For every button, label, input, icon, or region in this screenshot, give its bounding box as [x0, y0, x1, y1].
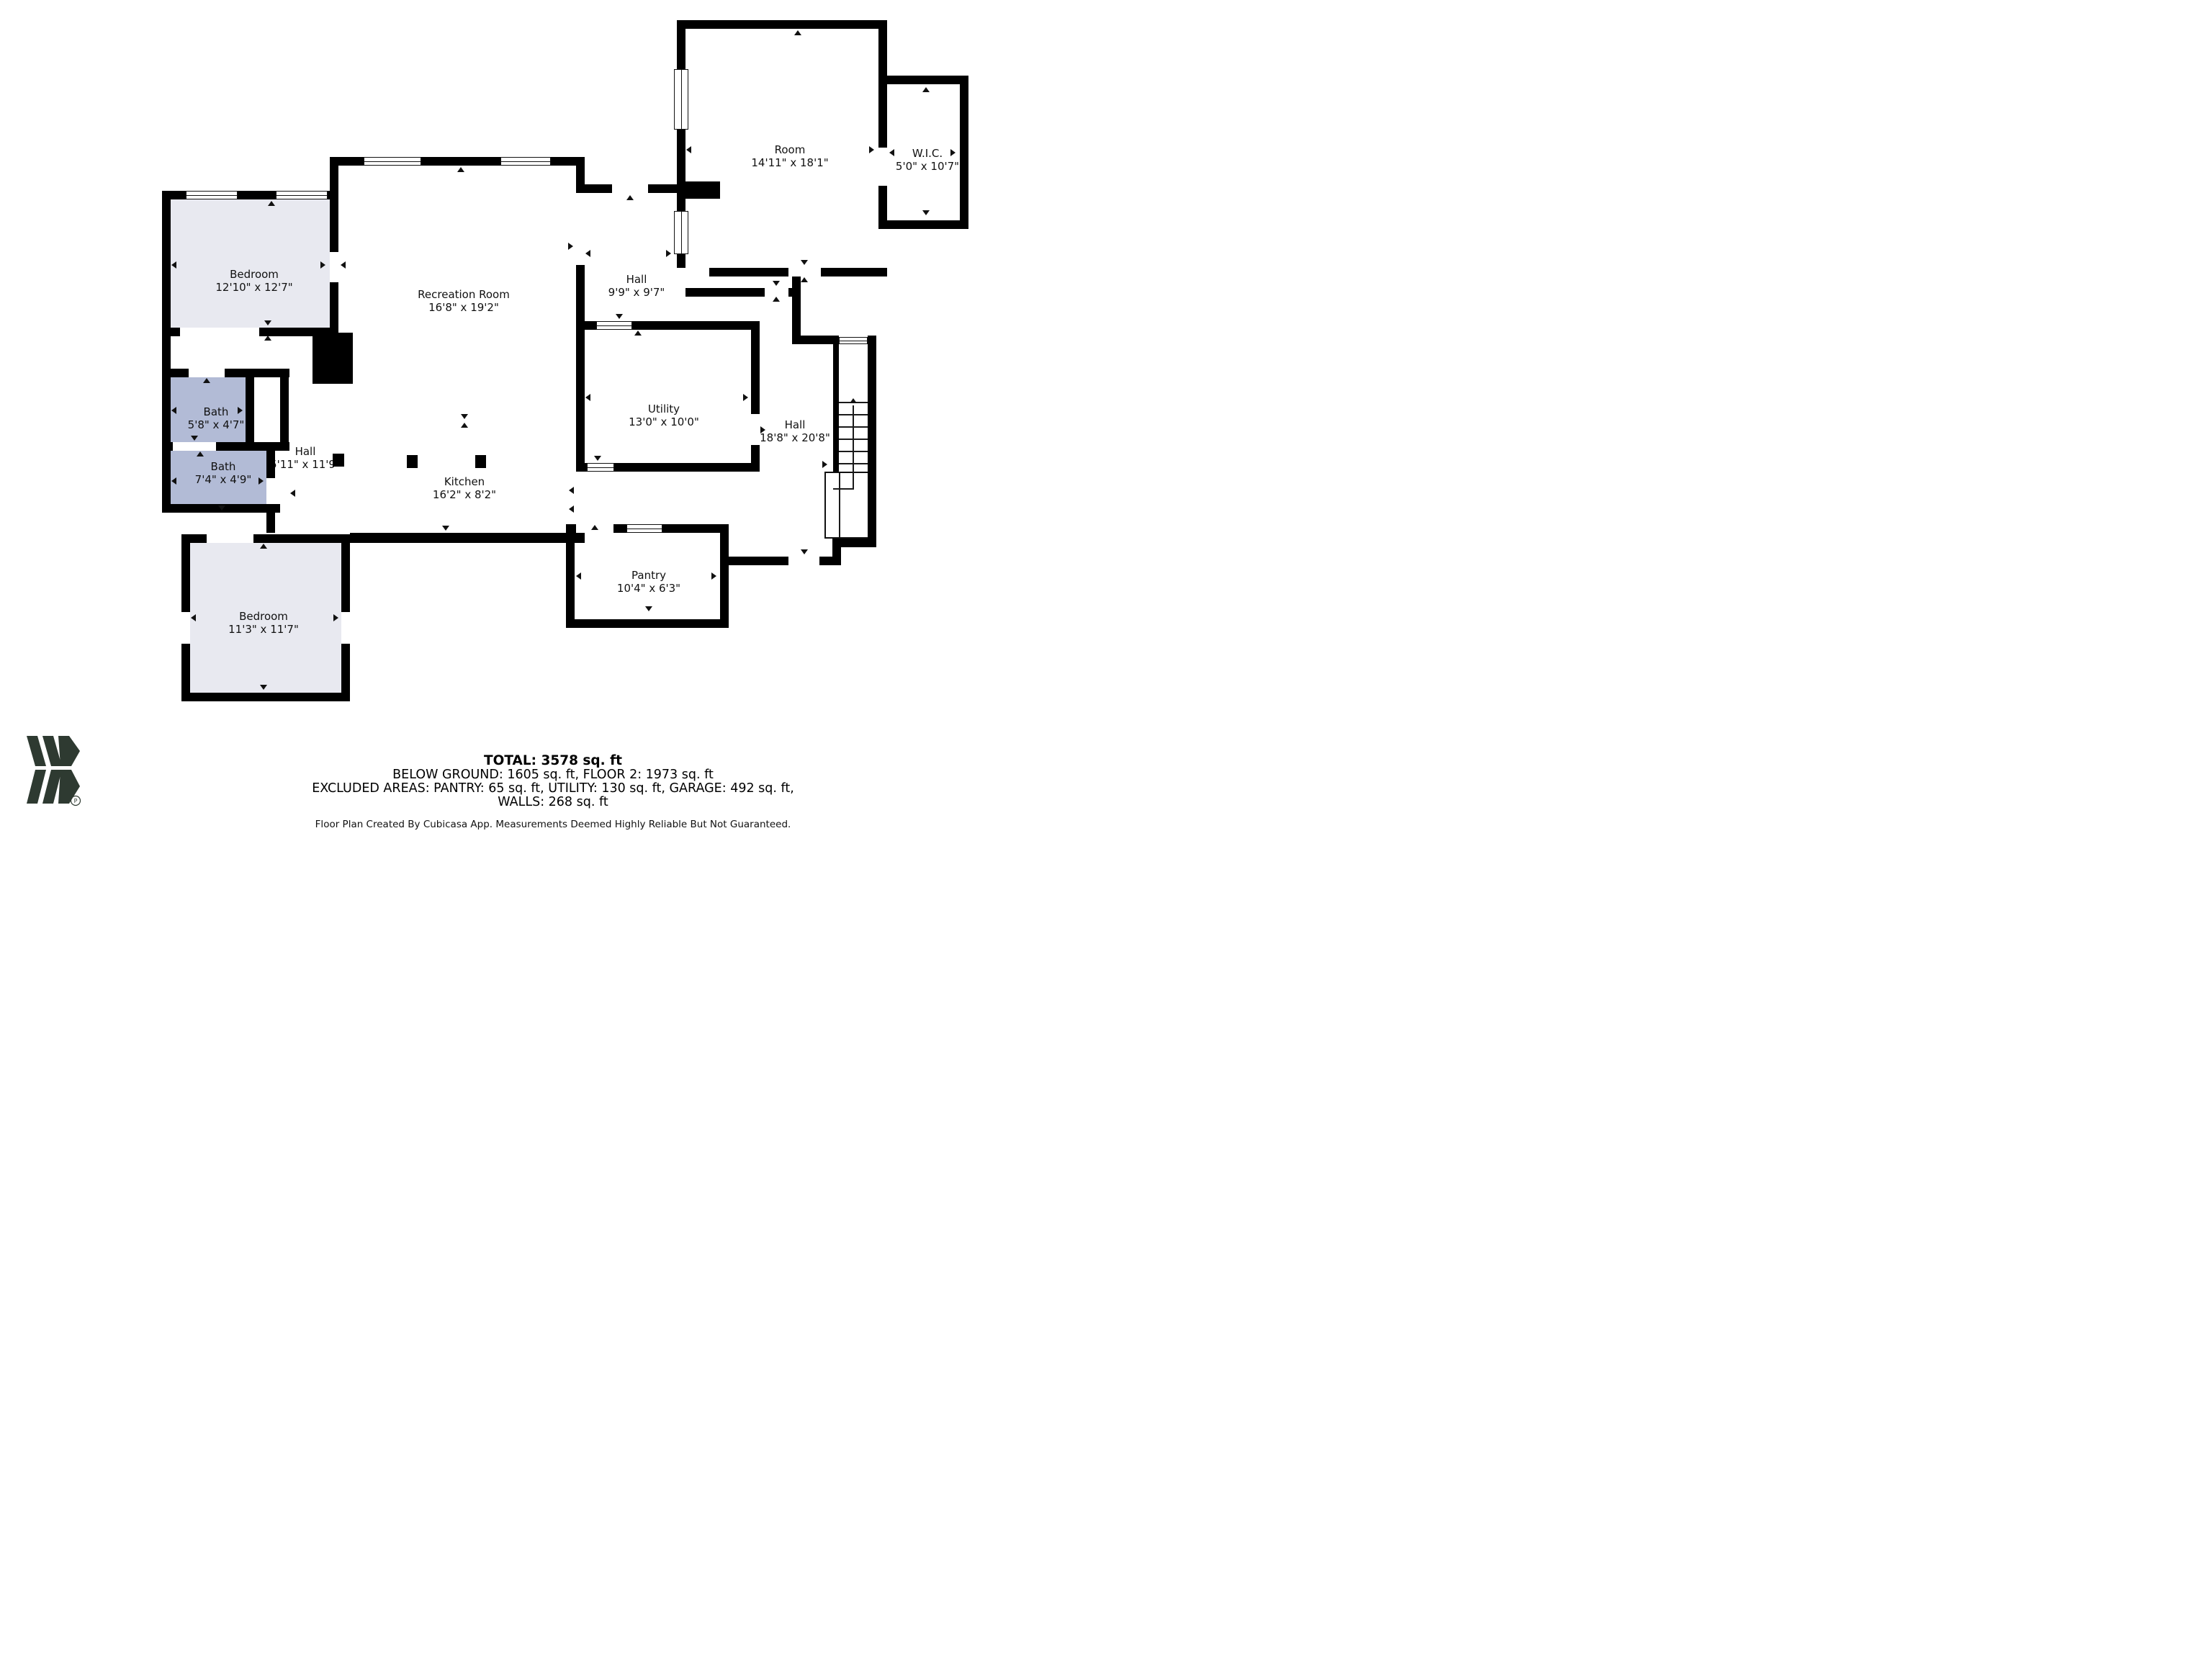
direction-arrow-icon: [686, 146, 691, 153]
disclaimer-text: Floor Plan Created By Cubicasa App. Meas…: [0, 818, 1106, 829]
stair-landing-divider: [839, 473, 840, 537]
window: [596, 321, 632, 330]
wall: [576, 265, 585, 472]
wic-label: W.I.C.5'0" x 10'7": [896, 147, 959, 173]
hall-right-label: Hall18'8" x 20'8": [760, 418, 830, 444]
wall: [792, 276, 801, 344]
direction-arrow-icon: [268, 201, 275, 206]
bedroom-1-fill: [171, 199, 330, 328]
footer-summary: TOTAL: 3578 sq. ft BELOW GROUND: 1605 sq…: [0, 755, 1106, 829]
wall: [960, 76, 968, 229]
direction-arrow-icon: [743, 394, 748, 401]
kitchen-label: Kitchen16'2" x 8'2": [433, 475, 496, 501]
wall: [685, 181, 720, 199]
wall: [280, 369, 289, 451]
stair-run-line: [833, 488, 854, 490]
direction-arrow-icon: [801, 260, 808, 265]
direction-arrow-icon: [320, 261, 325, 269]
wall: [566, 524, 575, 628]
wall: [246, 369, 254, 451]
pantry-label: Pantry10'4" x 6'3": [617, 569, 680, 595]
direction-arrow-icon: [203, 378, 210, 383]
wall: [751, 321, 760, 414]
window-pane-line: [840, 341, 867, 341]
wall: [162, 369, 189, 377]
window-pane-line: [588, 467, 613, 468]
utility-label: Utility13'0" x 10'0": [629, 403, 699, 428]
window: [839, 337, 868, 344]
wall: [833, 344, 839, 472]
direction-arrow-icon: [801, 277, 808, 282]
walls-area-text: WALLS: 268 sq. ft: [0, 796, 1106, 809]
direction-arrow-icon: [457, 167, 464, 172]
wall: [216, 442, 289, 451]
direction-arrow-icon: [171, 477, 176, 485]
wall: [162, 328, 180, 336]
window-pane-line: [681, 70, 682, 129]
wall: [832, 539, 841, 565]
bath-2-label: Bath7'4" x 4'9": [195, 460, 252, 486]
wall: [878, 20, 887, 84]
direction-arrow-icon: [645, 606, 652, 611]
direction-arrow-icon: [576, 572, 581, 580]
recreation-room-label: Recreation Room16'8" x 19'2": [418, 288, 510, 314]
direction-arrow-icon: [760, 426, 765, 433]
direction-arrow-icon: [666, 250, 671, 257]
direction-arrow-icon: [569, 487, 574, 494]
wall: [266, 442, 275, 478]
direction-arrow-icon: [801, 549, 808, 554]
wall: [350, 533, 585, 543]
stair-up-arrow-icon: [850, 398, 857, 403]
window-pane-line: [186, 195, 237, 196]
room-label: Room14'11" x 18'1": [751, 143, 828, 169]
direction-arrow-icon: [341, 261, 346, 269]
direction-arrow-icon: [869, 146, 874, 153]
direction-arrow-icon: [260, 544, 267, 549]
direction-arrow-icon: [634, 331, 642, 336]
wall: [729, 557, 788, 565]
wall: [566, 619, 729, 628]
svg-text:P: P: [74, 798, 78, 804]
direction-arrow-icon: [922, 87, 930, 92]
direction-arrow-icon: [585, 250, 590, 257]
wall: [162, 191, 171, 513]
bath-1-label: Bath5'8" x 4'7": [188, 405, 245, 431]
direction-arrow-icon: [218, 505, 225, 511]
cubicasa-logo: P: [25, 736, 83, 808]
wall: [887, 76, 968, 84]
wall: [878, 84, 887, 148]
wall: [330, 157, 338, 252]
wall: [720, 524, 729, 628]
direction-arrow-icon: [591, 525, 598, 530]
wall: [821, 268, 887, 276]
wall: [576, 184, 612, 193]
direction-arrow-icon: [333, 614, 338, 621]
direction-arrow-icon: [171, 261, 176, 269]
direction-arrow-icon: [585, 394, 590, 401]
wall: [330, 282, 338, 336]
direction-arrow-icon: [616, 314, 623, 319]
window: [587, 463, 614, 472]
wall: [819, 557, 832, 565]
window-pane-line: [681, 212, 682, 253]
wall: [677, 20, 887, 29]
direction-arrow-icon: [568, 243, 573, 250]
stair-landing: [824, 472, 869, 539]
direction-arrow-icon: [260, 685, 267, 690]
direction-arrow-icon: [773, 297, 780, 302]
wall: [313, 333, 353, 384]
wall: [709, 268, 788, 276]
window: [364, 157, 421, 166]
wall: [181, 693, 350, 701]
wall: [887, 220, 968, 229]
wall: [253, 534, 350, 543]
below-ground-text: BELOW GROUND: 1605 sq. ft, FLOOR 2: 1973…: [0, 768, 1106, 781]
wall: [878, 186, 887, 229]
excluded-areas-text: EXCLUDED AREAS: PANTRY: 65 sq. ft, UTILI…: [0, 782, 1106, 795]
wall: [792, 336, 839, 344]
window: [186, 191, 238, 199]
bedroom-1-label: Bedroom12'10" x 12'7": [215, 268, 292, 294]
hall-upper-label: Hall9'9" x 9'7": [608, 273, 665, 299]
bedroom-2-label: Bedroom11'3" x 11'7": [228, 610, 299, 636]
direction-arrow-icon: [889, 149, 894, 156]
stair-run-line: [853, 405, 854, 490]
direction-arrow-icon: [626, 195, 634, 200]
support-pillar: [475, 455, 486, 468]
direction-arrow-icon: [773, 281, 780, 286]
direction-arrow-icon: [171, 407, 176, 414]
window-pane-line: [276, 195, 327, 196]
wall: [788, 288, 801, 297]
support-pillar: [407, 455, 418, 468]
direction-arrow-icon: [197, 451, 204, 457]
support-pillar: [333, 454, 344, 467]
wall: [685, 288, 765, 297]
registered-mark-icon: P: [71, 796, 81, 806]
direction-arrow-icon: [264, 336, 271, 341]
wall: [648, 184, 677, 193]
window: [626, 524, 662, 533]
direction-arrow-icon: [711, 572, 716, 580]
total-area-text: TOTAL: 3578 sq. ft: [0, 755, 1106, 768]
floor-plan-canvas: Bedroom12'10" x 12'7" Recreation Room16'…: [0, 0, 1106, 829]
direction-arrow-icon: [950, 149, 956, 156]
direction-arrow-icon: [258, 477, 264, 485]
window-pane-line: [597, 325, 631, 326]
direction-arrow-icon: [191, 614, 196, 621]
direction-arrow-icon: [794, 30, 801, 35]
window: [276, 191, 328, 199]
wall: [868, 336, 876, 547]
window: [674, 211, 688, 254]
wall: [181, 534, 190, 612]
direction-arrow-icon: [461, 414, 468, 419]
window: [674, 69, 688, 130]
window-pane-line: [364, 161, 421, 162]
wall: [341, 534, 350, 612]
direction-arrow-icon: [238, 407, 243, 414]
direction-arrow-icon: [290, 490, 295, 497]
direction-arrow-icon: [822, 461, 827, 468]
direction-arrow-icon: [922, 210, 930, 215]
direction-arrow-icon: [191, 436, 198, 441]
window-pane-line: [501, 161, 550, 162]
direction-arrow-icon: [594, 456, 601, 461]
direction-arrow-icon: [569, 505, 574, 513]
window: [500, 157, 551, 166]
window-pane-line: [627, 529, 662, 529]
direction-arrow-icon: [461, 423, 468, 428]
wall: [162, 442, 173, 451]
direction-arrow-icon: [442, 526, 449, 531]
direction-arrow-icon: [264, 320, 271, 325]
